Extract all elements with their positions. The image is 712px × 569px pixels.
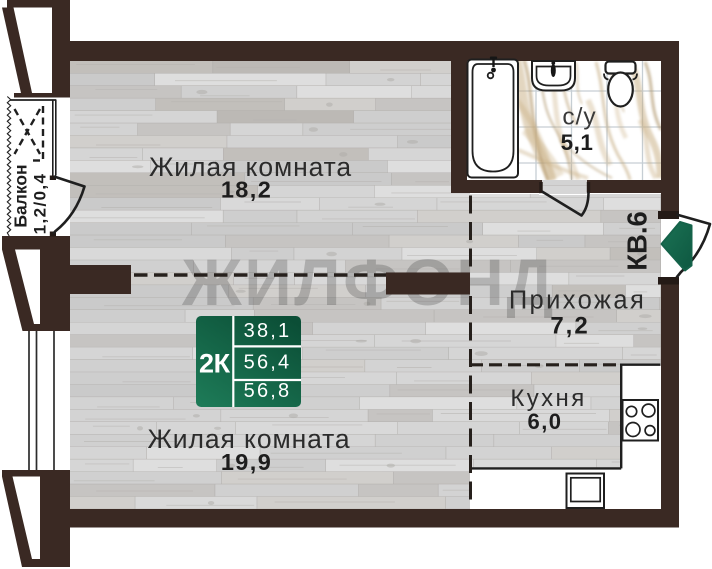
svg-text:с/у: с/у [562, 104, 596, 131]
svg-text:ЖИЛФОНД: ЖИЛФОНД [181, 245, 556, 319]
svg-text:Прихожая: Прихожая [509, 287, 646, 315]
svg-text:1,2/0,4: 1,2/0,4 [30, 173, 49, 235]
svg-text:КВ.6: КВ.6 [621, 211, 652, 271]
svg-text:Кухня: Кухня [510, 385, 586, 412]
svg-text:Балкон: Балкон [10, 164, 30, 227]
svg-text:38,1: 38,1 [244, 320, 292, 342]
svg-text:56,4: 56,4 [244, 352, 292, 374]
svg-text:19,9: 19,9 [221, 449, 272, 475]
svg-text:2К: 2К [199, 349, 231, 379]
svg-text:5,1: 5,1 [561, 130, 594, 155]
svg-text:6,0: 6,0 [527, 409, 562, 434]
svg-text:7,2: 7,2 [550, 313, 589, 340]
svg-text:56,8: 56,8 [244, 380, 292, 402]
svg-text:18,2: 18,2 [221, 177, 272, 203]
